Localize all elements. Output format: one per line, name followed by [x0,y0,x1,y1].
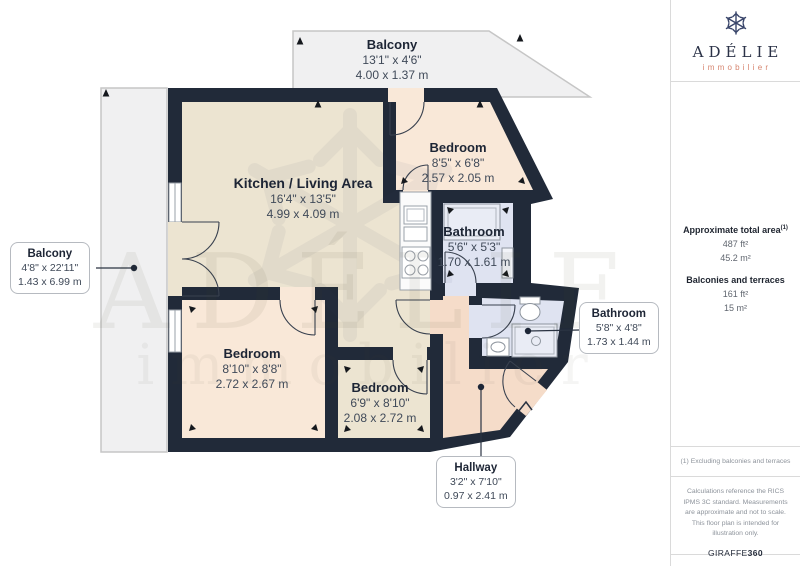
room-name: Bedroom [216,346,289,361]
room-imperial: 5'6" x 5'3" [438,240,511,254]
room-imperial: 16'4" x 13'5" [234,192,373,206]
brand-logo: ADÉLIE immobilier [671,0,800,82]
total-area-label: Approximate total area(1) [671,222,800,237]
room-name: Bathroom [438,224,511,239]
balconies-area-ft: 161 ft² [671,287,800,301]
room-name: Balcony [356,37,429,52]
info-sidebar: ADÉLIE immobilier Approximate total area… [670,0,800,566]
room-metric: 2.57 x 2.05 m [422,171,495,185]
room-metric: 1.70 x 1.61 m [438,255,511,269]
balconies-area-label: Balconies and terraces [671,274,800,287]
giraffe360-credit: GIRAFFE360 [679,547,792,560]
brand-tagline: immobilier [671,63,800,72]
disclaimer: Calculations reference the RICS IPMS 3C … [671,477,800,555]
kitchen-counter [400,192,431,290]
room-name: Hallway [444,461,508,475]
balconies-area-m: 15 m² [671,301,800,315]
room-metric: 1.73 x 1.44 m [587,336,651,349]
room-imperial: 13'1" x 4'6" [356,53,429,67]
label-bedroom-left: Bedroom 8'10" x 8'8" 2.72 x 2.67 m [216,346,289,391]
room-imperial: 5'8" x 4'8" [587,322,651,335]
room-name: Bathroom [587,307,651,321]
room-imperial: 4'8" x 22'11" [18,262,82,275]
room-imperial: 8'10" x 8'8" [216,362,289,376]
footnote-text: (1) Excluding balconies and terraces [681,458,791,465]
room-metric: 0.97 x 2.41 m [444,490,508,503]
credit-name: GIRAFFE [708,548,748,558]
total-area-ft: 487 ft² [671,237,800,251]
floorplan-page: ADÉLIE immobilier Balcony 13'1" x 4'6" 4… [0,0,800,566]
room-metric: 2.08 x 2.72 m [344,411,417,425]
room-metric: 4.99 x 4.09 m [234,207,373,221]
room-imperial: 8'5" x 6'8" [422,156,495,170]
label-bathroom-main: Bathroom 5'6" x 5'3" 1.70 x 1.61 m [438,224,511,269]
room-imperial: 6'9" x 8'10" [344,396,417,410]
room-metric: 4.00 x 1.37 m [356,68,429,82]
room-metric: 2.72 x 2.67 m [216,377,289,391]
room-name: Kitchen / Living Area [234,176,373,191]
snowflake-icon [723,10,749,36]
area-footnote: (1) Excluding balconies and terraces [671,447,800,477]
credit-suffix: 360 [748,548,763,558]
label-balcony-top: Balcony 13'1" x 4'6" 4.00 x 1.37 m [356,37,429,82]
brand-name: ADÉLIE [671,43,800,61]
disclaimer-text: Calculations reference the RICS IPMS 3C … [679,487,792,540]
floorplan-drawing [0,0,670,566]
room-name: Balcony [18,247,82,261]
room-metric: 1.43 x 6.99 m [18,276,82,289]
room-name: Bedroom [422,140,495,155]
callout-hallway: Hallway 3'2" x 7'10" 0.97 x 2.41 m [436,456,516,508]
callout-balcony-left: Balcony 4'8" x 22'11" 1.43 x 6.99 m [10,242,90,294]
label-bedroom-middle: Bedroom 6'9" x 8'10" 2.08 x 2.72 m [344,380,417,425]
callout-bathroom-ensuite: Bathroom 5'8" x 4'8" 1.73 x 1.44 m [579,302,659,354]
area-summary: Approximate total area(1) 487 ft² 45.2 m… [671,82,800,447]
label-kitchen-living: Kitchen / Living Area 16'4" x 13'5" 4.99… [234,176,373,221]
total-area-m: 45.2 m² [671,251,800,265]
balcony-top-floor [293,31,590,97]
footnote-ref: (1) [781,225,788,231]
floorplan-canvas: ADÉLIE immobilier Balcony 13'1" x 4'6" 4… [0,0,670,566]
label-bedroom-top: Bedroom 8'5" x 6'8" 2.57 x 2.05 m [422,140,495,185]
total-area-text: Approximate total area [683,225,781,235]
room-imperial: 3'2" x 7'10" [444,476,508,489]
room-name: Bedroom [344,380,417,395]
